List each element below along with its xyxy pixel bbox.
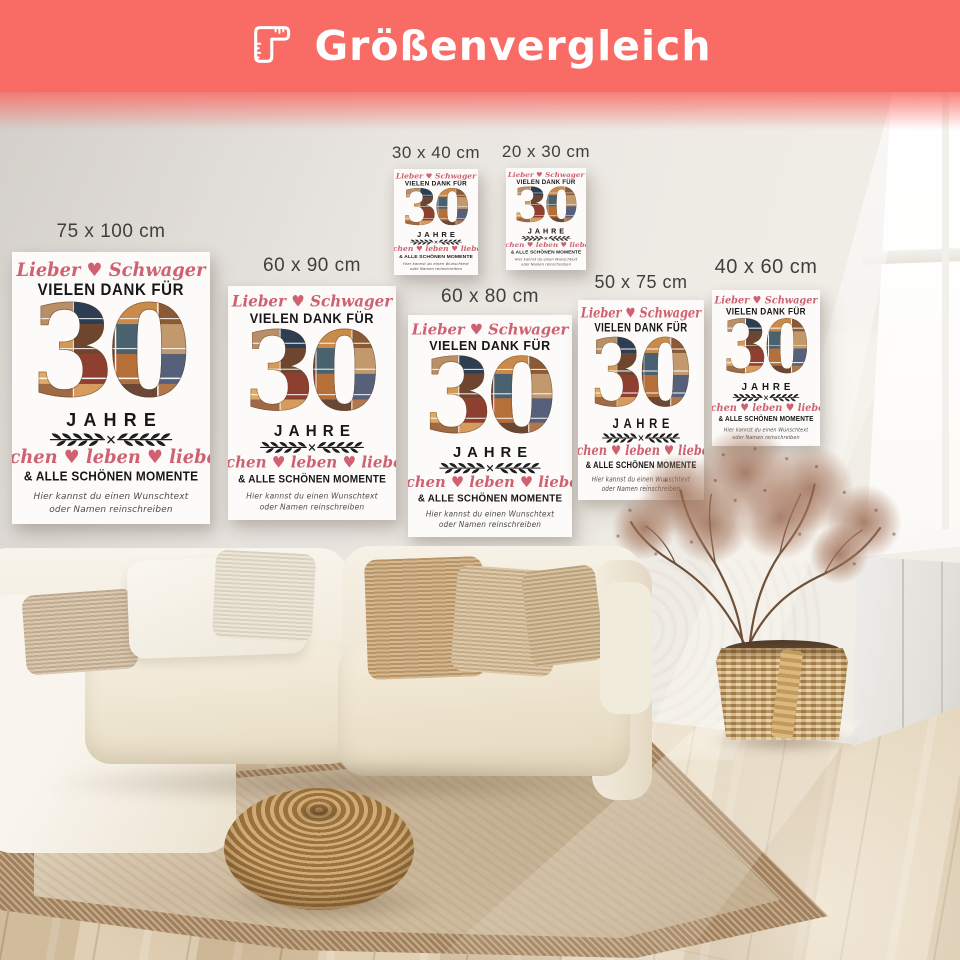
poster-custom-text-hint-line2: oder Namen reinschreiben <box>426 520 554 531</box>
rattan-pouf <box>224 788 414 910</box>
poster-20x30: 20 x 30 cm Lieber ♥ Schwager VIELEN DANK… <box>506 168 586 270</box>
poster-motto-script: lachen ♥ leben ♥ lieben <box>712 402 820 414</box>
poster-motto-script: lachen ♥ leben ♥ lieben <box>408 474 572 490</box>
poster-custom-text-hint: Hier kannst du einen Wunschtext oder Nam… <box>403 262 469 272</box>
poster-moments-line: & ALLE SCHÖNEN MOMENTE <box>238 472 386 485</box>
poster-motto-script: lachen ♥ leben ♥ lieben <box>394 245 478 253</box>
poster-size-label: 50 x 75 cm <box>594 272 687 293</box>
poster-custom-text-hint: Hier kannst du einen Wunschtext oder Nam… <box>515 257 578 267</box>
poster-years-line: JAHRE <box>66 411 163 431</box>
poster-frame: Lieber ♥ Schwager VIELEN DANK FÜR 30 JAH… <box>12 252 210 524</box>
poster-custom-text-hint-line2: oder Namen reinschreiben <box>34 503 189 516</box>
poster-frame: Lieber ♥ Schwager VIELEN DANK FÜR 30 JAH… <box>228 286 396 520</box>
ruler-icon <box>248 23 294 69</box>
poster-size-label: 30 x 40 cm <box>392 143 480 163</box>
throw-pillow-cream <box>212 549 316 642</box>
poster-moments-line: & ALLE SCHÖNEN MOMENTE <box>24 469 198 484</box>
poster-moments-line: & ALLE SCHÖNEN MOMENTE <box>418 492 562 504</box>
poster-custom-text-hint-line1: Hier kannst du einen Wunschtext <box>34 490 189 503</box>
poster-custom-text-hint-line2: oder Namen reinschreiben <box>403 267 469 272</box>
poster-size-label: 60 x 90 cm <box>263 255 361 277</box>
poster-custom-text-hint: Hier kannst du einen Wunschtext oder Nam… <box>246 490 377 513</box>
poster-photo-collage-number: 30 <box>30 294 191 409</box>
poster-years-line: JAHRE <box>417 231 458 239</box>
poster-artwork: Lieber ♥ Schwager VIELEN DANK FÜR 30 JAH… <box>228 286 396 520</box>
poster-thanks-line: VIELEN DANK FÜR <box>429 339 550 353</box>
poster-photo-collage-number: 30 <box>590 331 693 416</box>
poster-moments-line: & ALLE SCHÖNEN MOMENTE <box>399 253 473 259</box>
throw-pillow-tan <box>21 588 138 676</box>
poster-custom-text-hint-line1: Hier kannst du einen Wunschtext <box>426 509 554 520</box>
poster-artwork: Lieber ♥ Schwager VIELEN DANK FÜR 30 JAH… <box>408 315 572 537</box>
poster-thanks-line: VIELEN DANK FÜR <box>516 179 575 185</box>
poster-custom-text-hint: Hier kannst du einen Wunschtext oder Nam… <box>34 490 189 517</box>
poster-thanks-line: VIELEN DANK FÜR <box>405 180 467 187</box>
poster-motto-script: lachen ♥ leben ♥ lieben <box>12 447 210 467</box>
poster-artwork: Lieber ♥ Schwager VIELEN DANK FÜR 30 JAH… <box>12 252 210 524</box>
poster-years-line: JAHRE <box>528 227 567 235</box>
poster-60x90: 60 x 90 cm Lieber ♥ Schwager VIELEN DANK… <box>228 286 396 520</box>
poster-thanks-line: VIELEN DANK FÜR <box>250 311 374 326</box>
poster-thanks-line: VIELEN DANK FÜR <box>726 307 806 317</box>
poster-thanks-line: VIELEN DANK FÜR <box>38 281 185 298</box>
banner-content: Größenvergleich <box>0 0 960 92</box>
laurel-divider-icon <box>45 432 177 447</box>
poster-photo-collage-number: 30 <box>722 314 810 380</box>
poster-photo-collage-number: 30 <box>423 349 556 443</box>
poster-frame: Lieber ♥ Schwager VIELEN DANK FÜR 30 JAH… <box>506 168 586 270</box>
size-comparison-banner: Größenvergleich <box>0 0 960 92</box>
poster-frame: Lieber ♥ Schwager VIELEN DANK FÜR 30 JAH… <box>408 315 572 537</box>
banner-title: Größenvergleich <box>314 22 711 70</box>
poster-frame: Lieber ♥ Schwager VIELEN DANK FÜR 30 JAH… <box>394 169 478 275</box>
poster-moments-line: & ALLE SCHÖNEN MOMENTE <box>511 249 581 255</box>
poster-artwork: Lieber ♥ Schwager VIELEN DANK FÜR 30 JAH… <box>506 168 586 270</box>
poster-size-label: 75 x 100 cm <box>57 221 166 243</box>
poster-custom-text-hint-line1: Hier kannst du einen Wunschtext <box>246 490 377 501</box>
poster-custom-text-hint: Hier kannst du einen Wunschtext oder Nam… <box>426 509 554 531</box>
poster-motto-script: lachen ♥ leben ♥ lieben <box>228 454 396 471</box>
poster-years-line: JAHRE <box>274 422 356 439</box>
poster-size-label: 60 x 80 cm <box>441 286 539 308</box>
poster-years-line: JAHRE <box>453 444 533 460</box>
poster-thanks-line: VIELEN DANK FÜR <box>594 321 687 334</box>
throw-pillow-small-tan <box>520 564 605 668</box>
poster-custom-text-hint-line2: oder Namen reinschreiben <box>246 502 377 513</box>
poster-size-label: 20 x 30 cm <box>502 142 590 162</box>
poster-photo-collage-number: 30 <box>513 184 578 227</box>
poster-photo-collage-number: 30 <box>244 322 381 421</box>
size-comparison-mockup: 75 x 100 cm Lieber ♥ Schwager VIELEN DAN… <box>0 0 960 960</box>
laurel-divider-icon <box>256 441 368 454</box>
poster-size-label: 40 x 60 cm <box>715 256 818 279</box>
poster-75x100: 75 x 100 cm Lieber ♥ Schwager VIELEN DAN… <box>12 252 210 524</box>
poster-years-line: JAHRE <box>742 381 795 393</box>
window-mullion-vertical <box>942 82 949 538</box>
poster-30x40: 30 x 40 cm Lieber ♥ Schwager VIELEN DANK… <box>394 169 478 275</box>
poster-custom-text-hint-line2: oder Namen reinschreiben <box>515 262 578 267</box>
poster-photo-collage-number: 30 <box>402 185 470 230</box>
poster-60x80: 60 x 80 cm Lieber ♥ Schwager VIELEN DANK… <box>408 315 572 537</box>
armrest-cushion <box>600 582 652 714</box>
laurel-divider-icon <box>435 462 544 474</box>
poster-motto-script: lachen ♥ leben ♥ lieben <box>506 241 586 249</box>
poster-artwork: Lieber ♥ Schwager VIELEN DANK FÜR 30 JAH… <box>394 169 478 275</box>
